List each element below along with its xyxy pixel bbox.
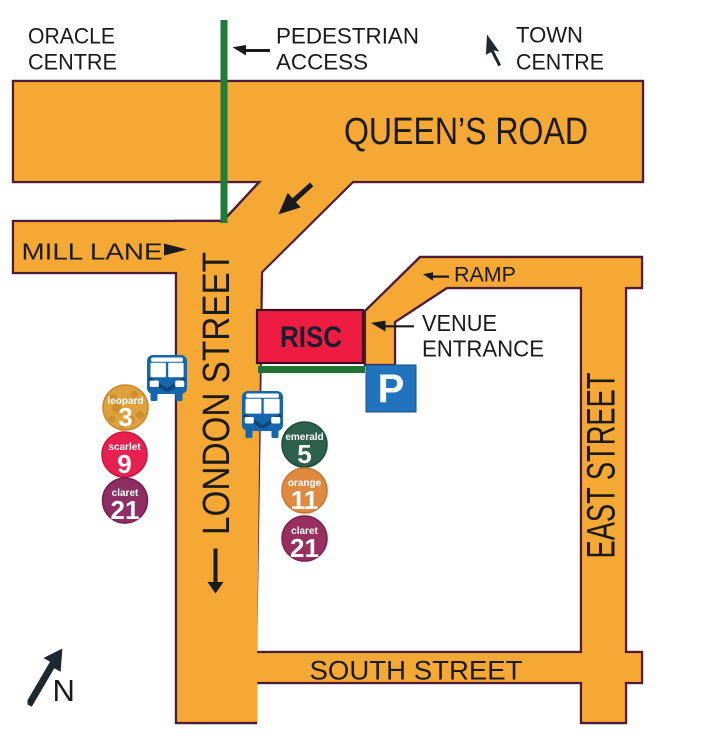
svg-text:VENUE: VENUE — [422, 310, 497, 336]
svg-text:CENTRE: CENTRE — [28, 50, 117, 75]
svg-text:EAST STREET: EAST STREET — [580, 373, 624, 559]
svg-text:RISC: RISC — [280, 321, 342, 354]
svg-text:ENTRANCE: ENTRANCE — [422, 336, 544, 362]
svg-text:9: 9 — [117, 449, 131, 479]
svg-text:ORACLE: ORACLE — [28, 24, 115, 49]
svg-text:SOUTH STREET: SOUTH STREET — [310, 656, 523, 686]
svg-text:MILL LANE: MILL LANE — [22, 239, 163, 265]
svg-text:3: 3 — [118, 402, 132, 432]
svg-text:N: N — [53, 673, 75, 708]
svg-text:21: 21 — [290, 533, 319, 563]
svg-text:QUEEN’S ROAD: QUEEN’S ROAD — [344, 111, 588, 153]
svg-text:TOWN: TOWN — [516, 23, 583, 48]
svg-text:PEDESTRIAN: PEDESTRIAN — [276, 24, 419, 49]
svg-text:11: 11 — [291, 485, 319, 515]
svg-text:LONDON STREET: LONDON STREET — [196, 252, 238, 535]
svg-text:21: 21 — [111, 495, 140, 525]
svg-text:CENTRE: CENTRE — [516, 50, 604, 75]
svg-text:5: 5 — [297, 439, 311, 469]
svg-text:ACCESS: ACCESS — [276, 50, 368, 75]
svg-text:RAMP: RAMP — [454, 264, 516, 287]
svg-text:P: P — [378, 367, 405, 411]
